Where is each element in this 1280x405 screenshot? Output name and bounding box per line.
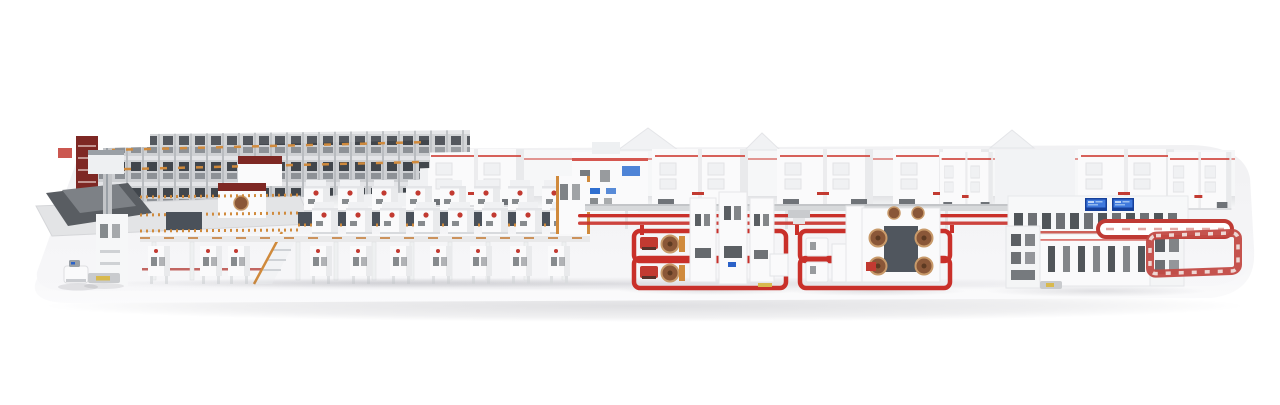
mini-screen bbox=[590, 188, 600, 194]
deck-highlight bbox=[140, 234, 590, 236]
orange-post bbox=[556, 176, 559, 234]
side-cabinet bbox=[770, 254, 788, 276]
machine-red-top bbox=[218, 183, 266, 191]
paper-roll bbox=[234, 196, 248, 210]
agv-bumper bbox=[66, 279, 86, 282]
house-roof-box bbox=[592, 142, 620, 154]
roof-gable bbox=[618, 128, 678, 150]
paper-roll bbox=[916, 230, 933, 247]
conveyor-top-line bbox=[585, 204, 1015, 206]
roll-shuttle-car bbox=[640, 266, 658, 279]
tower-slot bbox=[112, 224, 120, 238]
agv-blue-light bbox=[71, 262, 75, 265]
house-sign bbox=[622, 166, 640, 176]
end-house bbox=[556, 176, 590, 234]
pallet-shadow bbox=[84, 283, 124, 289]
tower-slot bbox=[100, 224, 108, 238]
track-connector bbox=[950, 225, 954, 233]
paper-roll bbox=[662, 236, 679, 253]
roof-gable bbox=[745, 133, 780, 150]
control-cabinet bbox=[806, 262, 828, 282]
yellow-pallet bbox=[758, 283, 772, 287]
paper-roll bbox=[916, 258, 933, 275]
floor-scrubber bbox=[1040, 281, 1062, 289]
end-house-window bbox=[572, 184, 580, 200]
display-screen bbox=[1085, 198, 1107, 211]
left-tower bbox=[1006, 226, 1040, 288]
paper-roll bbox=[662, 265, 679, 282]
background-cabin bbox=[940, 152, 993, 210]
dark-panel bbox=[166, 212, 202, 230]
paper-roll bbox=[912, 207, 924, 219]
roll-ladder bbox=[679, 265, 685, 281]
red-device bbox=[866, 262, 876, 271]
production-line-render bbox=[0, 0, 1280, 405]
saddle-base bbox=[793, 218, 805, 224]
control-cabinet bbox=[806, 238, 828, 256]
tower-line bbox=[100, 250, 120, 253]
paper-roll bbox=[870, 230, 887, 247]
mini-screen bbox=[606, 188, 616, 194]
track-connector bbox=[795, 225, 799, 235]
paper-roll bbox=[888, 207, 900, 219]
machine-red-top bbox=[238, 156, 282, 164]
background-cabin bbox=[777, 149, 873, 207]
splicer-tower bbox=[846, 206, 864, 282]
end-house-window bbox=[560, 184, 568, 200]
splicer-tower bbox=[690, 198, 716, 282]
dry-end-machine bbox=[986, 196, 1206, 297]
mast-head-band bbox=[88, 150, 124, 155]
roof-gable bbox=[990, 130, 1034, 148]
splicer-dark-bed bbox=[884, 226, 918, 272]
house-red-stripe bbox=[572, 158, 648, 161]
tower-line bbox=[100, 262, 120, 265]
shuttle-pallet bbox=[88, 273, 120, 283]
display-screen bbox=[1112, 198, 1134, 211]
red-crate bbox=[58, 148, 72, 158]
saddle-top bbox=[788, 210, 810, 218]
roll-shuttle-car bbox=[640, 237, 658, 250]
reel-splicer-station bbox=[862, 207, 940, 282]
blue-indicator bbox=[728, 262, 736, 267]
splicer-tower bbox=[719, 192, 747, 284]
pallet-yellow-insert bbox=[96, 276, 110, 281]
render-stage bbox=[0, 0, 1280, 405]
corrugator-shadow bbox=[120, 278, 640, 288]
roll-ladder bbox=[679, 236, 685, 252]
